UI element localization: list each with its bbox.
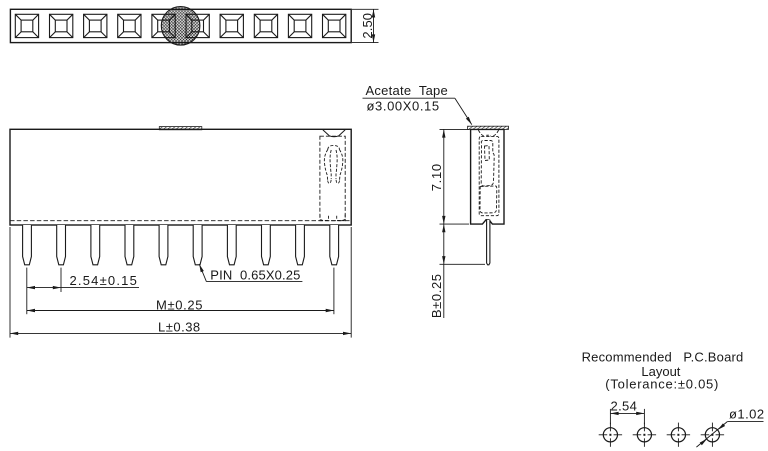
svg-text:Recommended P.C.Board: Recommended P.C.Board xyxy=(582,350,744,365)
svg-text:M±0.25: M±0.25 xyxy=(156,297,203,312)
svg-text:2.54: 2.54 xyxy=(611,399,638,414)
svg-text:L±0.38: L±0.38 xyxy=(158,320,201,335)
svg-text:(Tolerance:±0.05): (Tolerance:±0.05) xyxy=(605,377,719,392)
svg-text:PIN 0.65X0.25: PIN 0.65X0.25 xyxy=(210,267,300,282)
svg-text:2.50: 2.50 xyxy=(360,13,375,39)
svg-text:ø1.02: ø1.02 xyxy=(729,407,765,422)
svg-text:ø3.00X0.15: ø3.00X0.15 xyxy=(367,98,440,113)
svg-text:B±0.25: B±0.25 xyxy=(429,273,444,318)
svg-text:2.54±0.15: 2.54±0.15 xyxy=(70,273,139,288)
svg-text:7.10: 7.10 xyxy=(429,163,444,191)
svg-text:Acetate Tape: Acetate Tape xyxy=(366,83,449,98)
